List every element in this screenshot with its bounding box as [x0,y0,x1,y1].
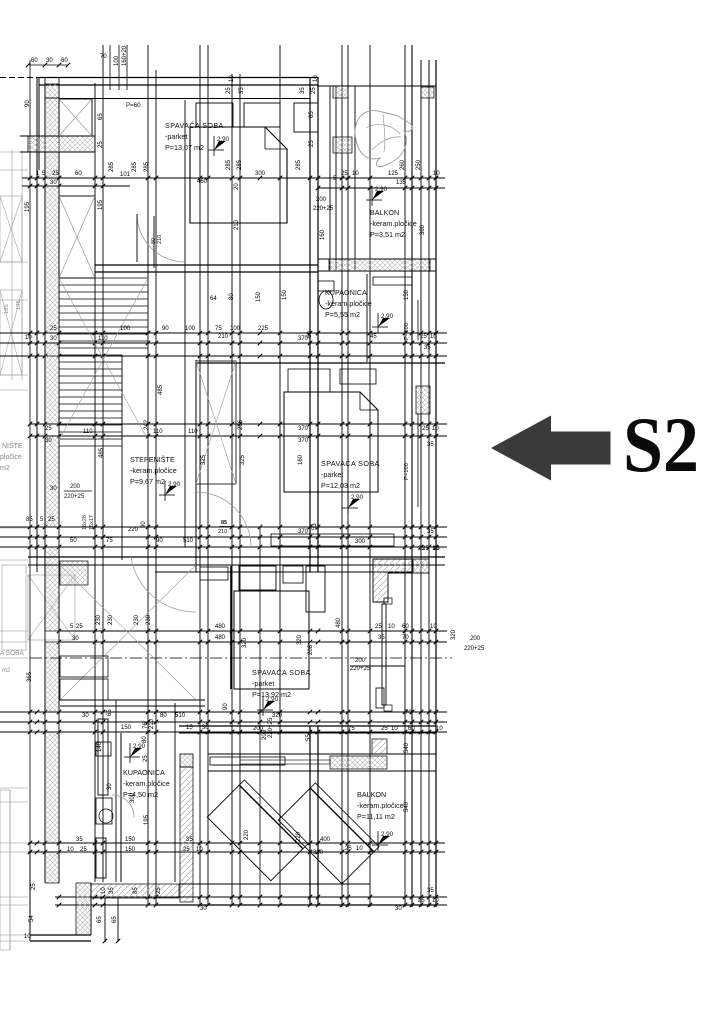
svg-text:KUPAONICA: KUPAONICA [123,768,165,777]
svg-text:P=60: P=60 [126,102,141,109]
svg-text:P=11,11 m2: P=11,11 m2 [357,812,395,821]
svg-text:30: 30 [50,336,57,342]
svg-text:90: 90 [141,521,147,528]
svg-text:320: 320 [242,637,248,648]
svg-text:45: 45 [370,334,377,340]
svg-text:210: 210 [218,334,229,340]
svg-text:90: 90 [162,326,169,332]
svg-text:10: 10 [196,847,203,853]
svg-text:25: 25 [52,171,59,177]
svg-text:60: 60 [307,331,313,338]
svg-text:2,90: 2,90 [351,494,364,501]
svg-text:2,90: 2,90 [266,696,279,703]
svg-text:150: 150 [125,837,136,843]
svg-text:10: 10 [430,334,437,340]
svg-text:460: 460 [197,179,208,185]
svg-text:25: 25 [226,87,232,94]
svg-text:365: 365 [27,671,33,682]
svg-text:P=3,51 m2: P=3,51 m2 [370,230,405,239]
svg-text:150: 150 [121,725,132,731]
svg-text:2,90: 2,90 [133,743,146,750]
svg-text:P=13,07 m2: P=13,07 m2 [165,143,204,152]
svg-text:35: 35 [427,529,434,535]
svg-text:10: 10 [388,624,395,630]
svg-text:m2: m2 [2,668,11,674]
svg-text:242: 242 [144,419,150,430]
svg-text:110: 110 [153,429,163,435]
svg-text:100: 100 [114,55,120,66]
svg-text:10: 10 [430,624,437,630]
svg-text:85: 85 [133,887,139,894]
svg-text:25: 25 [76,624,83,630]
svg-text:P=9,67 m2: P=9,67 m2 [130,477,165,486]
svg-text:370: 370 [298,529,309,535]
svg-text:10: 10 [432,546,439,552]
svg-text:25: 25 [45,426,52,432]
svg-text:65: 65 [112,916,118,923]
svg-text:10: 10 [433,171,440,177]
svg-text:480: 480 [215,624,226,630]
svg-text:25: 25 [345,846,352,852]
svg-text:220: 220 [244,829,250,840]
svg-text:KUPAONICA: KUPAONICA [325,288,367,297]
svg-text:54: 54 [29,915,35,922]
svg-text:185: 185 [4,304,10,314]
svg-text:30: 30 [395,906,402,912]
svg-text:140: 140 [97,741,103,752]
svg-text:236: 236 [238,419,244,430]
svg-text:53: 53 [312,523,318,530]
svg-text:285: 285 [109,161,115,172]
svg-text:SPAVAĆA SOBA: SPAVAĆA SOBA [321,459,380,468]
svg-text:510: 510 [175,713,186,719]
svg-text:30: 30 [82,713,89,719]
svg-text:60: 60 [61,58,68,64]
svg-text:200: 200 [470,636,481,642]
svg-text:30: 30 [50,486,57,492]
svg-text:10: 10 [24,934,31,940]
svg-text:P=4,50 m2: P=4,50 m2 [123,790,158,799]
svg-text:35: 35 [76,837,83,843]
svg-text:25: 25 [418,898,425,904]
svg-text:195: 195 [25,201,31,212]
svg-text:A SOBA: A SOBA [0,650,25,657]
svg-text:220+25: 220+25 [64,494,85,500]
svg-text:80: 80 [229,293,235,300]
svg-text:10: 10 [67,847,74,853]
svg-text:25: 25 [143,755,149,762]
svg-text:30: 30 [202,725,209,731]
svg-text:10: 10 [436,726,443,732]
svg-text:-keram.pločice: -keram.pločice [370,219,417,228]
svg-text:30: 30 [200,906,207,912]
svg-text:2,90: 2,90 [381,831,394,838]
svg-text:75: 75 [106,538,113,544]
svg-text:P=100: P=100 [404,323,410,340]
svg-text:70: 70 [405,710,412,716]
svg-text:25: 25 [98,141,104,148]
svg-text:35: 35 [424,345,431,351]
svg-text:-parket: -parket [252,679,274,688]
svg-text:25: 25 [156,887,162,894]
svg-text:110: 110 [188,429,198,435]
svg-text:230: 230 [146,614,152,625]
svg-text:100: 100 [185,326,196,332]
svg-text:20: 20 [234,183,240,190]
svg-text:260: 260 [400,159,406,170]
svg-text:150: 150 [125,847,136,853]
svg-text:25: 25 [48,517,55,523]
svg-text:10: 10 [313,75,319,82]
svg-text:SPAVAĆA SOBA: SPAVAĆA SOBA [252,668,311,677]
svg-text:10: 10 [432,426,439,432]
svg-text:25: 25 [309,140,315,147]
svg-text:70: 70 [402,635,409,641]
svg-text:25: 25 [311,87,317,94]
svg-text:150: 150 [282,289,288,300]
svg-text:10: 10 [229,75,235,82]
svg-text:330: 330 [313,850,324,856]
svg-text:110: 110 [83,429,93,435]
svg-text:55: 55 [306,734,312,741]
svg-text:10: 10 [352,171,359,177]
svg-text:64: 64 [210,296,217,302]
svg-text:200: 200 [70,484,81,490]
svg-text:208: 208 [308,644,314,655]
svg-text:160: 160 [298,454,304,465]
svg-text:100: 100 [230,326,241,332]
svg-text:195: 195 [16,300,22,310]
svg-text:510: 510 [183,538,194,544]
svg-text:25: 25 [422,426,429,432]
svg-text:25: 25 [375,624,382,630]
svg-text:P=12,03 m2: P=12,03 m2 [321,481,360,490]
svg-text:35: 35 [378,635,385,641]
svg-text:90: 90 [25,100,31,107]
svg-text:90: 90 [156,538,163,544]
svg-text:90: 90 [223,703,229,710]
svg-text:25: 25 [183,847,190,853]
svg-text:480: 480 [336,617,342,628]
svg-text:300: 300 [130,792,136,803]
svg-text:-keram.pločice: -keram.pločice [357,801,404,810]
svg-text:250: 250 [416,159,422,170]
svg-text:225: 225 [258,326,269,332]
svg-text:65: 65 [97,916,103,923]
svg-text:285: 285 [296,159,302,170]
svg-text:10: 10 [356,846,363,852]
svg-text:210: 210 [218,529,227,535]
svg-text:150: 150 [404,289,410,300]
svg-text:60: 60 [402,624,409,630]
svg-text:2,90: 2,90 [381,313,394,320]
svg-text:60: 60 [75,171,82,177]
svg-text:100: 100 [120,326,131,332]
svg-text:285: 285 [226,159,232,170]
svg-text:220+25: 220+25 [313,206,334,212]
svg-text:135: 135 [396,180,407,186]
svg-text:125: 125 [388,171,399,177]
svg-text:25: 25 [420,334,427,340]
svg-text:NIŠTE: NIŠTE [2,441,23,450]
svg-text:485: 485 [99,447,105,458]
svg-text:10: 10 [101,887,107,894]
svg-text:35: 35 [427,888,434,894]
svg-text:30: 30 [50,180,57,186]
svg-text:110: 110 [98,336,108,342]
svg-text:200: 200 [355,658,366,664]
svg-text:210: 210 [149,718,155,729]
svg-text:220+25: 220+25 [350,666,371,672]
svg-text:30: 30 [72,636,79,642]
svg-text:540: 540 [404,742,410,753]
svg-text:220: 220 [296,831,302,842]
svg-text:35: 35 [239,87,245,94]
svg-text:60: 60 [31,58,38,64]
svg-text:65: 65 [107,709,113,716]
svg-text:210: 210 [157,235,163,244]
svg-text:2,90: 2,90 [375,186,388,193]
svg-text:15: 15 [186,725,193,731]
svg-text:35: 35 [300,87,306,94]
svg-text:25: 25 [80,847,87,853]
svg-text:300: 300 [255,171,266,177]
svg-text:75: 75 [215,326,222,332]
svg-text:220+25: 220+25 [464,646,485,652]
svg-text:50: 50 [70,538,77,544]
svg-text:101: 101 [120,172,131,178]
svg-text:m2: m2 [0,465,10,472]
svg-text:30: 30 [45,438,52,444]
svg-text:220+25: 220+25 [268,717,274,738]
svg-text:25: 25 [381,726,388,732]
svg-text:75: 75 [348,726,355,732]
svg-text:2,90: 2,90 [217,136,230,143]
svg-text:285: 285 [132,161,138,172]
svg-text:-parket: -parket [165,132,187,141]
svg-text:65: 65 [98,113,104,120]
svg-text:325: 325 [201,454,207,465]
svg-text:35: 35 [427,442,434,448]
svg-text:80: 80 [142,736,148,743]
svg-text:70: 70 [100,54,107,60]
svg-text:285: 285 [237,159,243,170]
svg-text:35: 35 [109,887,115,894]
svg-text:200: 200 [316,197,327,203]
svg-text:285: 285 [144,161,150,172]
svg-text:25: 25 [31,883,37,890]
svg-text:60: 60 [408,726,415,732]
svg-text:-keram.pločice: -keram.pločice [123,779,170,788]
svg-text:2,90: 2,90 [168,481,181,488]
svg-text:540: 540 [404,801,410,812]
svg-text:320: 320 [297,634,303,645]
svg-text:-keram.pločice: -keram.pločice [130,466,177,475]
svg-text:P=100: P=100 [404,463,410,480]
svg-text:85: 85 [26,517,33,523]
svg-text:65: 65 [309,111,315,118]
svg-text:480: 480 [215,635,226,641]
svg-text:10: 10 [391,726,398,732]
svg-text:195: 195 [144,814,150,825]
svg-text:80: 80 [160,713,167,719]
svg-text:230: 230 [96,614,102,625]
svg-text:-parket: -parket [321,470,343,479]
svg-text:16x28: 16x28 [82,515,88,530]
svg-text:220: 220 [128,527,139,533]
svg-text:160: 160 [320,229,326,240]
svg-text:STEPENIŠTE: STEPENIŠTE [130,455,175,464]
svg-text:P=5,55 m2: P=5,55 m2 [325,310,360,319]
svg-text:S2: S2 [623,401,699,488]
svg-text:360: 360 [420,224,426,235]
svg-text:370: 370 [298,426,309,432]
svg-text:325: 325 [240,454,246,465]
svg-text:15x17: 15x17 [89,515,95,530]
svg-text:370: 370 [298,438,309,444]
svg-text:SPAVAĆA SOBA: SPAVAĆA SOBA [165,121,224,130]
svg-text:195: 195 [98,199,104,210]
svg-text:300: 300 [355,539,366,545]
svg-text:320: 320 [451,629,457,640]
svg-text:160+20: 160+20 [122,45,128,66]
svg-text:485: 485 [158,384,164,395]
svg-text:25: 25 [341,171,348,177]
svg-text:25: 25 [418,546,425,552]
svg-text:210: 210 [234,219,240,230]
svg-text:230: 230 [108,614,114,625]
svg-text:230: 230 [134,614,140,625]
svg-text:BALKON: BALKON [357,790,386,799]
svg-text:85: 85 [221,520,227,526]
svg-text:30: 30 [107,783,113,790]
svg-text:25: 25 [50,326,57,332]
svg-text:10: 10 [432,898,439,904]
svg-text:150: 150 [256,291,262,302]
svg-text:30: 30 [46,58,53,64]
svg-text:35: 35 [186,837,193,843]
svg-text:BALKON: BALKON [370,208,399,217]
svg-text:400: 400 [320,837,331,843]
svg-text:pločice: pločice [0,454,22,461]
svg-text:-keram.pločice: -keram.pločice [325,299,372,308]
svg-text:10: 10 [25,335,32,341]
